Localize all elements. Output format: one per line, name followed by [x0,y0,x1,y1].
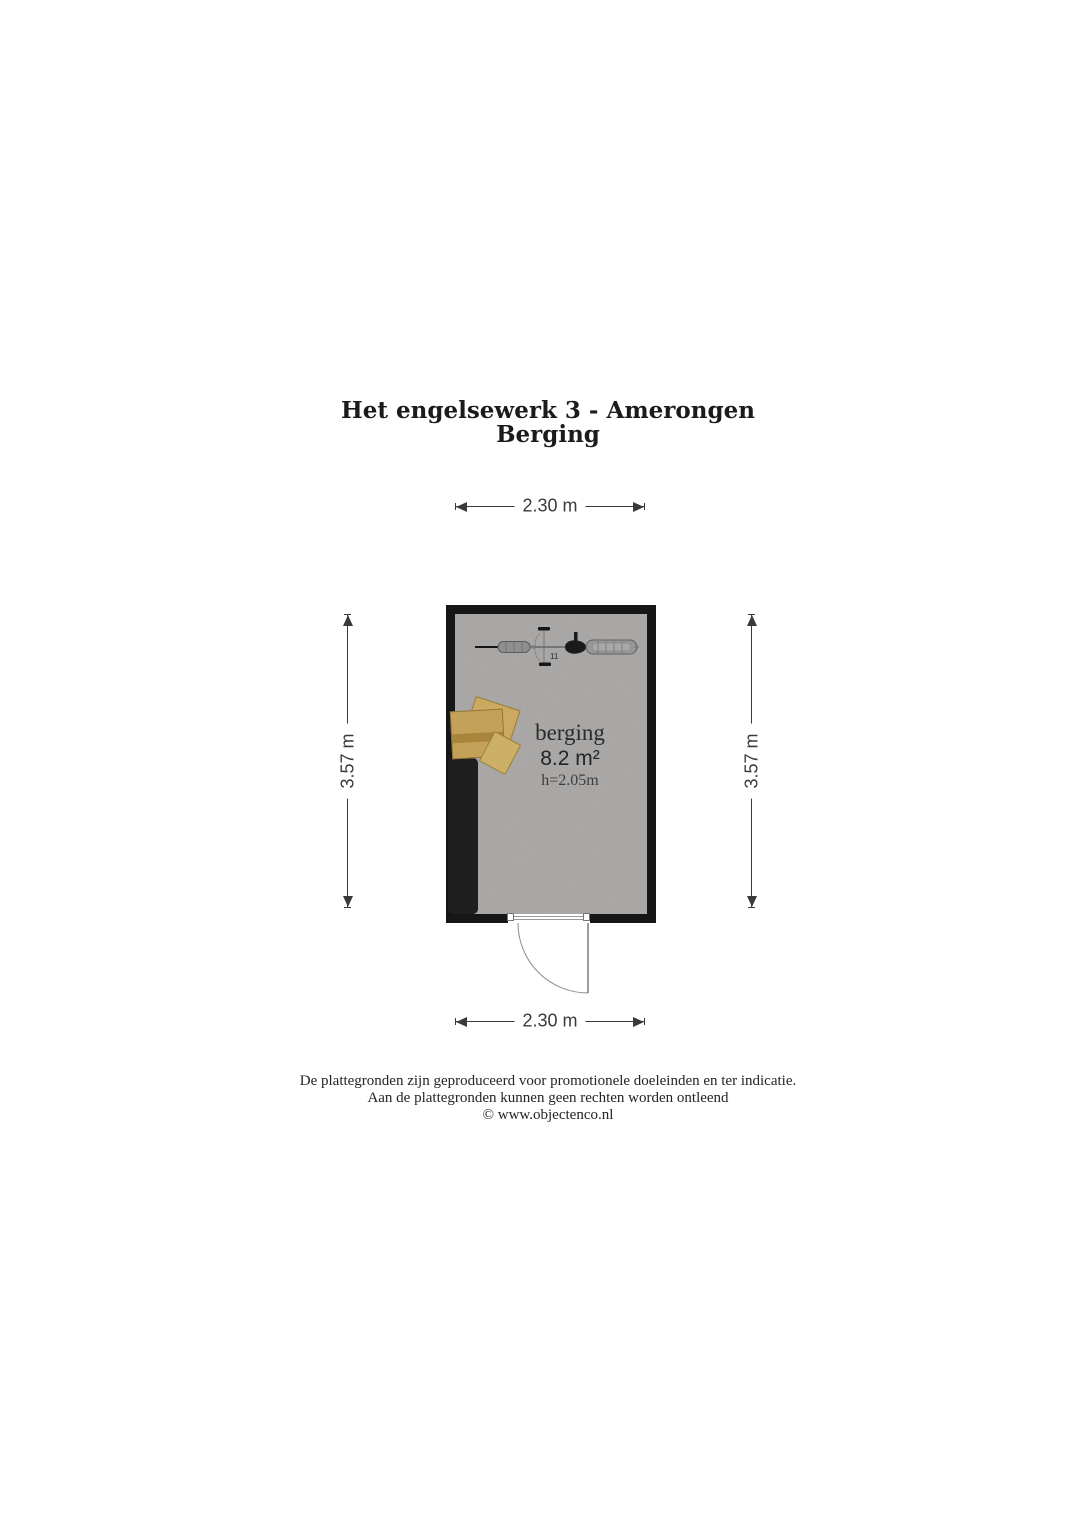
dimension-top-label: 2.30 m [514,496,585,517]
door-swing-icon [500,920,600,1000]
arrow-down-icon [343,896,353,907]
copyright-line: © www.objectenco.nl [8,1107,1080,1124]
arrow-up-icon [747,615,757,626]
dimension-left-label: 3.57 m [337,723,358,798]
dimension-right: 3.57 m [741,614,763,908]
dimension-bottom: 2.30 m [455,1011,645,1033]
disclaimer-line-2: Aan de plattegronden kunnen geen rechten… [8,1090,1080,1107]
disclaimer: De plattegronden zijn geproduceerd voor … [8,1073,1080,1124]
dimension-end-tick [748,907,755,908]
boxes-icon [445,698,525,788]
dimension-left: 3.57 m [337,614,359,908]
title-line-2: Berging [8,423,1080,447]
arrow-left-icon [456,502,467,512]
dimension-right-label: 3.57 m [741,723,762,798]
bicycle-icon: 11 [474,626,640,670]
threshold-line [508,919,590,920]
arrow-down-icon [747,896,757,907]
dimension-end-tick [644,1018,645,1025]
door-jamb-left [507,913,514,921]
page-title: Het engelsewerk 3 - Amerongen Berging [8,399,1080,447]
door-opening [508,914,590,923]
floorplan-page: Het engelsewerk 3 - Amerongen Berging 2.… [0,0,1080,1527]
door-jamb-right [583,913,590,921]
threshold-line [508,916,590,917]
arrow-left-icon [456,1017,467,1027]
dimension-top: 2.30 m [455,496,645,518]
dimension-end-tick [644,503,645,510]
arrow-up-icon [343,615,353,626]
title-line-1: Het engelsewerk 3 - Amerongen [8,399,1080,423]
bike-marking: 11 [550,652,559,661]
arrow-right-icon [633,1017,644,1027]
dimension-bottom-label: 2.30 m [514,1011,585,1032]
floor-plan: 11 berging 8.2 m² h=2.05m [446,605,656,923]
arrow-right-icon [633,502,644,512]
disclaimer-line-1: De plattegronden zijn geproduceerd voor … [8,1073,1080,1090]
dimension-end-tick [344,907,351,908]
